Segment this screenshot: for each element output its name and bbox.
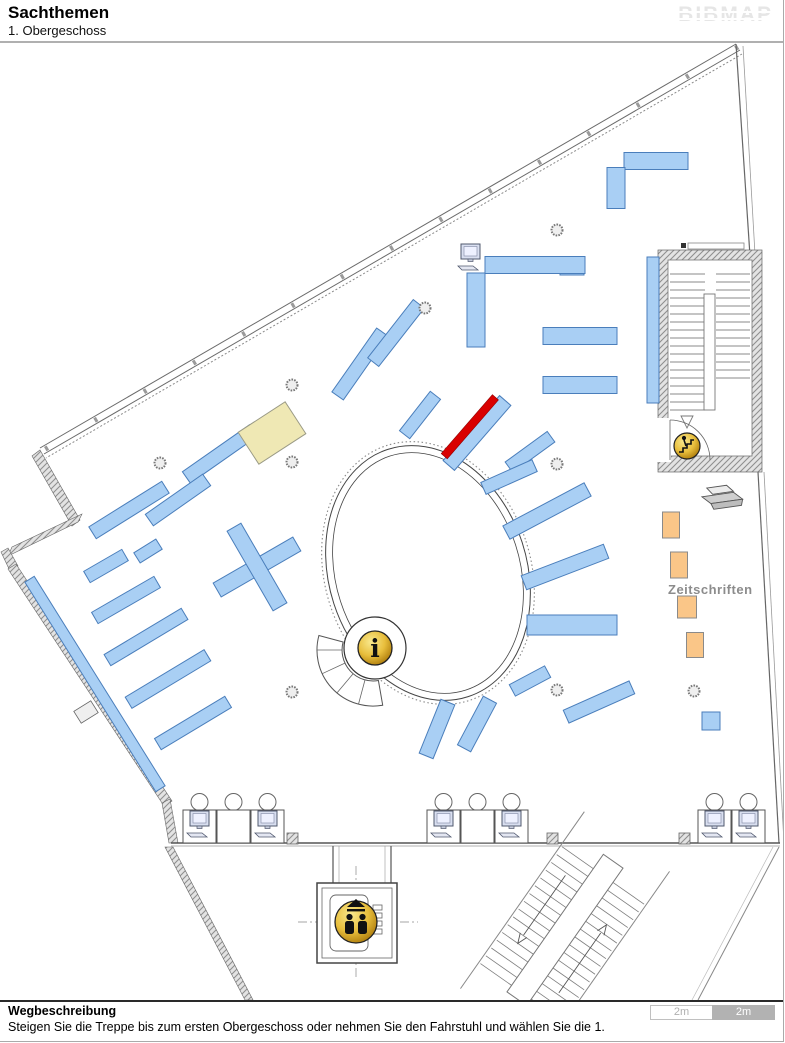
column	[287, 380, 298, 391]
chair	[503, 794, 520, 811]
column	[287, 457, 298, 468]
bookshelf[interactable]	[104, 608, 188, 665]
wall-post	[679, 833, 690, 844]
desks-layer	[183, 794, 765, 845]
svg-text:i: i	[370, 634, 380, 663]
page-title: Sachthemen	[8, 3, 109, 23]
bibmap-logo-text: BIBMAP	[678, 3, 773, 26]
bookshelf[interactable]	[92, 576, 161, 623]
bookshelf[interactable]	[543, 328, 617, 345]
bookshelf[interactable]	[563, 681, 634, 723]
bookshelf[interactable]	[702, 712, 720, 730]
directions-heading: Wegbeschreibung	[8, 1004, 116, 1018]
staircase-top-right	[655, 243, 762, 472]
wall-post	[547, 833, 558, 844]
directions-text: Steigen Sie die Treppe bis zum ersten Ob…	[8, 1020, 605, 1034]
printer-icon	[701, 483, 744, 510]
floor-subtitle: 1. Obergeschoss	[8, 23, 106, 38]
bookshelf[interactable]	[647, 257, 659, 403]
bookshelf[interactable]	[134, 539, 162, 563]
stairs-icon[interactable]	[674, 433, 700, 459]
logo-stripe	[674, 18, 777, 20]
column	[287, 687, 298, 698]
bookshelf[interactable]	[624, 153, 688, 170]
column	[552, 225, 563, 236]
bookshelf[interactable]	[485, 257, 585, 274]
magazine-shelf[interactable]	[671, 552, 688, 578]
bookshelf[interactable]	[457, 696, 496, 752]
chair	[191, 794, 208, 811]
spiral-stair-landing	[317, 617, 406, 706]
shelf-highlighted[interactable]	[439, 392, 511, 471]
scale-segment-dark: 2m	[712, 1005, 775, 1020]
bookshelf[interactable]	[399, 391, 440, 438]
floor-plan: i Zeitschriften	[0, 0, 783, 1041]
magazine-shelf[interactable]	[687, 633, 704, 658]
bookshelf[interactable]	[607, 168, 625, 209]
bookshelf[interactable]	[419, 699, 455, 758]
bookshelf[interactable]	[25, 576, 165, 791]
bibmap-page: i Zeitschriften Sachthemen 1. Obergescho…	[0, 0, 784, 1042]
bookshelf[interactable]	[503, 483, 591, 539]
table-block[interactable]	[238, 402, 306, 464]
computer-desk-group	[427, 794, 528, 844]
bookshelf[interactable]	[227, 523, 287, 611]
wall-post	[287, 833, 298, 844]
bibmap-logo: BIBMAP	[678, 3, 773, 27]
bookshelf[interactable]	[467, 273, 485, 347]
desk	[217, 810, 250, 843]
chair	[706, 794, 723, 811]
computer-desk-group	[183, 794, 284, 844]
bookshelf[interactable]	[155, 696, 232, 749]
magazine-shelf[interactable]	[663, 512, 680, 538]
bookshelf[interactable]	[84, 549, 129, 582]
bookshelf[interactable]	[543, 377, 617, 394]
chair	[259, 794, 276, 811]
bookshelf[interactable]	[509, 666, 550, 696]
column	[420, 303, 431, 314]
opac-computer-icon[interactable]	[458, 244, 480, 270]
chair	[435, 794, 452, 811]
desk	[461, 810, 494, 843]
bookshelf[interactable]	[521, 544, 609, 590]
footer: Wegbeschreibung Steigen Sie die Treppe b…	[0, 1000, 783, 1041]
magazine-shelf[interactable]	[678, 596, 697, 618]
computer-desk-group	[698, 794, 765, 844]
bookshelf[interactable]	[125, 650, 211, 709]
map-scale-bar: 2m2m	[650, 1005, 775, 1018]
info-icon[interactable]: i	[358, 631, 392, 665]
column	[552, 459, 563, 470]
chair	[469, 794, 486, 811]
header: Sachthemen 1. Obergeschoss BIBMAP	[0, 0, 783, 43]
logo-stripe	[674, 11, 777, 13]
chair	[740, 794, 757, 811]
column	[155, 458, 166, 469]
bookshelf[interactable]	[527, 615, 617, 635]
zeitschriften-label: Zeitschriften	[668, 582, 753, 597]
column	[552, 685, 563, 696]
scale-segment-light: 2m	[650, 1005, 712, 1020]
chair	[225, 794, 242, 811]
column	[689, 686, 700, 697]
